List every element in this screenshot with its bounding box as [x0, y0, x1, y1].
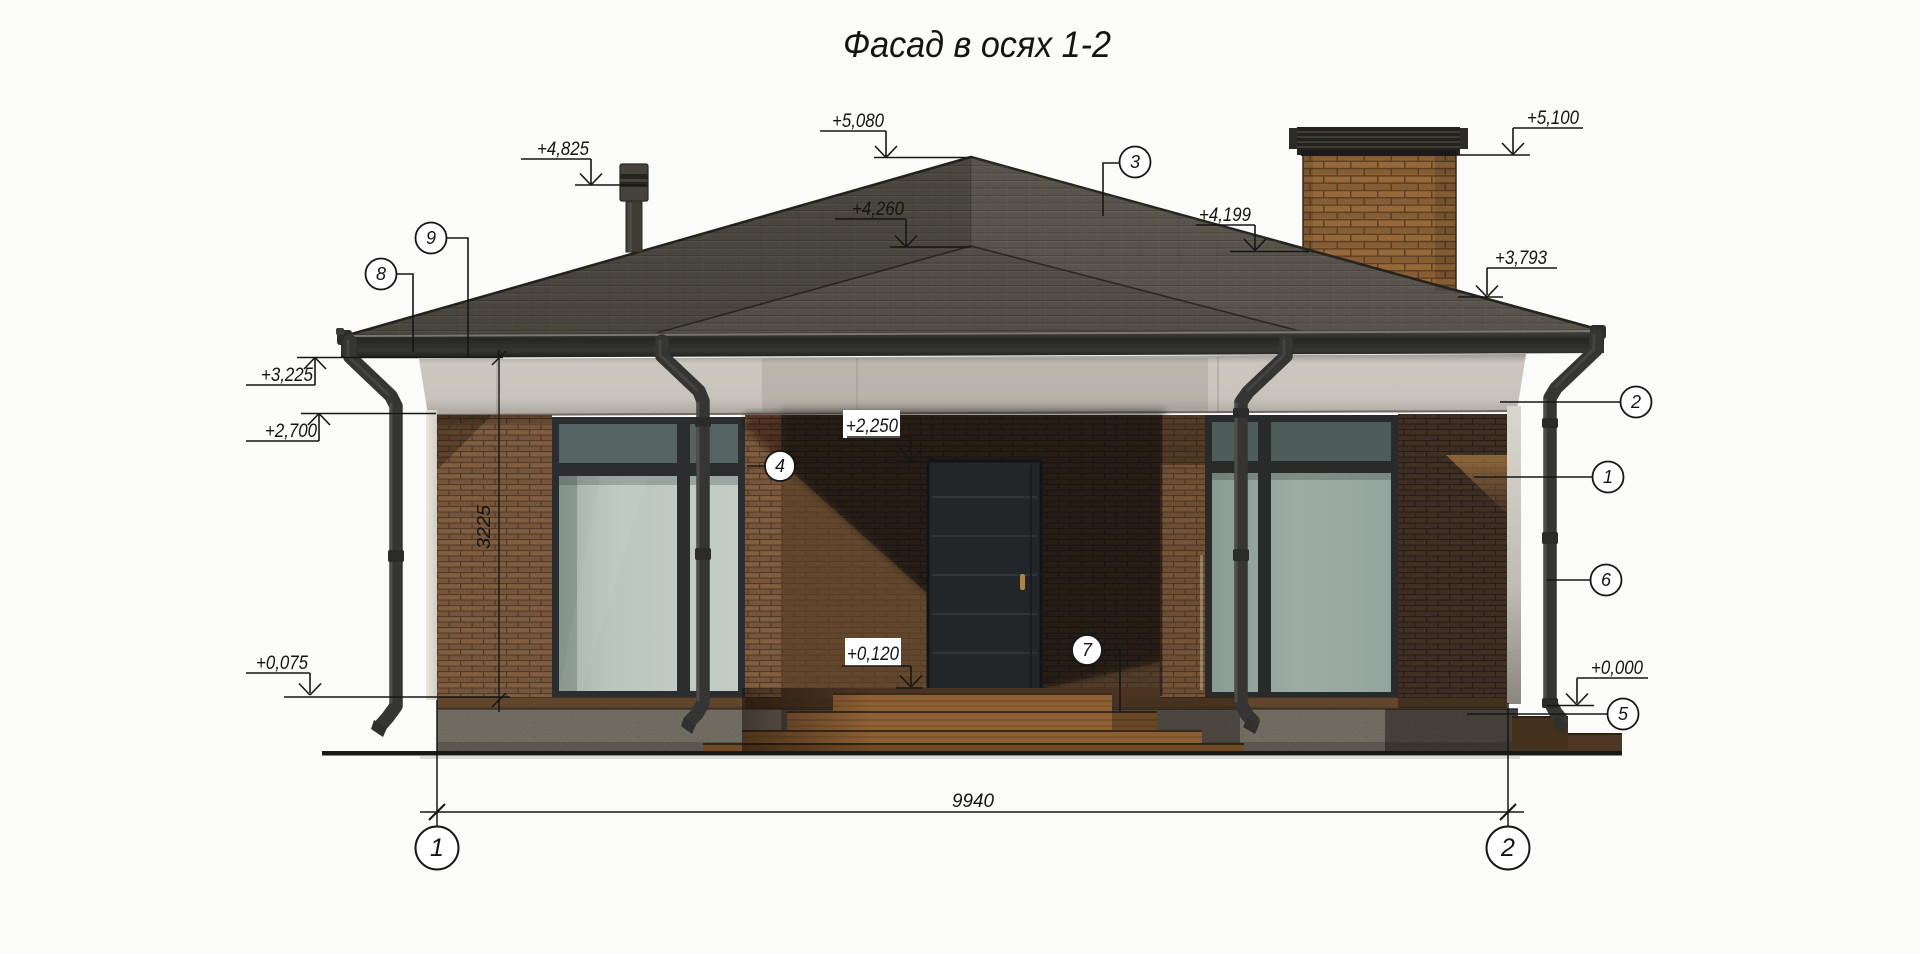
svg-text:+2,700: +2,700 [265, 421, 317, 442]
svg-text:5: 5 [1618, 704, 1629, 724]
svg-text:+5,080: +5,080 [832, 111, 884, 132]
svg-text:+0,075: +0,075 [256, 653, 308, 674]
svg-text:9940: 9940 [952, 791, 994, 812]
svg-text:+0,000: +0,000 [1591, 658, 1643, 679]
svg-text:2: 2 [1500, 834, 1515, 862]
svg-text:3225: 3225 [474, 504, 494, 549]
svg-text:+4,825: +4,825 [537, 139, 589, 160]
svg-text:+2,250: +2,250 [846, 416, 898, 437]
svg-text:1: 1 [430, 834, 444, 862]
svg-text:7: 7 [1082, 640, 1093, 660]
svg-text:8: 8 [376, 264, 386, 284]
svg-text:+5,100: +5,100 [1527, 108, 1579, 129]
svg-text:+0,120: +0,120 [847, 644, 899, 665]
svg-text:+4,199: +4,199 [1199, 205, 1251, 226]
svg-text:+3,225: +3,225 [261, 365, 313, 386]
svg-text:1: 1 [1603, 467, 1613, 487]
svg-text:+3,793: +3,793 [1495, 248, 1547, 269]
svg-text:+4,260: +4,260 [852, 199, 904, 220]
svg-text:9: 9 [426, 228, 436, 248]
svg-text:4: 4 [775, 456, 785, 476]
svg-text:2: 2 [1630, 392, 1641, 412]
svg-text:3: 3 [1130, 152, 1140, 172]
svg-text:Фасад в осях 1-2: Фасад в осях 1-2 [843, 24, 1111, 65]
svg-text:6: 6 [1601, 570, 1612, 590]
